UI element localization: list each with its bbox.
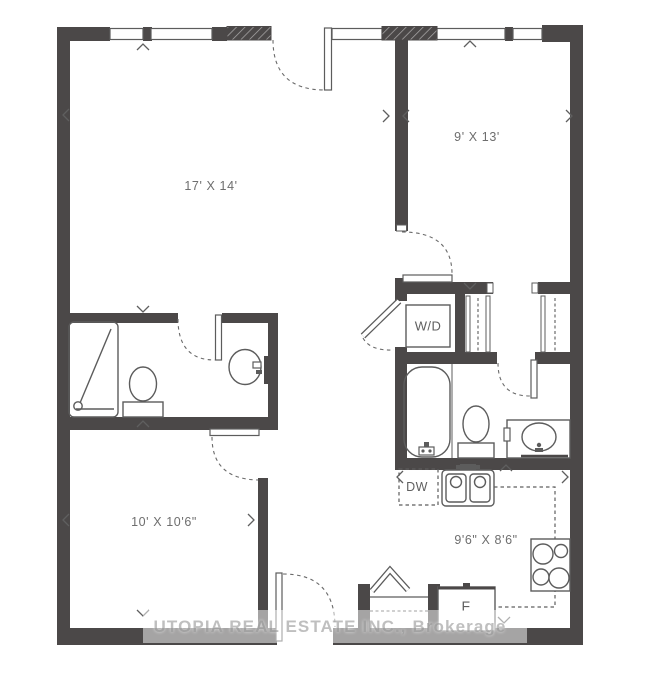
- chevron-mark: [248, 514, 254, 526]
- bifold-closet-door: [372, 570, 408, 591]
- floor-plan: 17' X 14' 9' X 13' 10' X 10'6" 9'6" X 8'…: [0, 0, 662, 682]
- faucet: [256, 370, 262, 374]
- watermark: UTOPIA REAL ESTATE INC., Brokerage: [154, 617, 507, 637]
- chevron-mark: [464, 41, 476, 47]
- balcony-door-panel: [382, 27, 437, 41]
- tub-faucet: [419, 447, 434, 455]
- kitchen-faucet: [476, 465, 480, 469]
- bedroom-door-arc: [212, 437, 258, 480]
- shower-fixture: [69, 322, 118, 417]
- room-dimension-bedroom1: 10' X 10'6": [131, 515, 197, 529]
- faucet: [253, 362, 261, 368]
- window: [332, 29, 382, 40]
- exterior-walls: [57, 25, 583, 645]
- closet-side-panel: [486, 296, 490, 352]
- burner: [533, 569, 549, 585]
- toilet-fixture-bathroom2: [458, 406, 494, 458]
- bathtub-fixture: [404, 367, 450, 457]
- window: [513, 29, 542, 40]
- mirror: [264, 356, 270, 384]
- tub-faucet: [424, 442, 429, 447]
- kitchen-sink-fixture: [442, 464, 494, 506]
- bathroom2-door-arc: [498, 363, 530, 396]
- sink-fixture-bathroom1: [229, 350, 270, 385]
- faucet: [535, 448, 543, 452]
- kitchen-faucet: [460, 464, 476, 470]
- washer-dryer-label: W/D: [415, 319, 441, 334]
- room-dimension-bedroom2: 9' X 13': [454, 130, 500, 144]
- chevron-mark: [137, 306, 149, 312]
- stove-fixture: [531, 539, 570, 591]
- balcony-door-arc: [273, 40, 325, 90]
- soap-ledge: [504, 428, 510, 441]
- window: [151, 29, 212, 40]
- closet-side-panel: [466, 296, 470, 352]
- hall-door-arc: [402, 232, 452, 274]
- bathroom1-door-arc: [178, 319, 215, 360]
- room-dimension-living: 17' X 14': [184, 179, 237, 193]
- burner: [533, 544, 553, 564]
- chevron-mark: [562, 471, 568, 483]
- hall-door-leaf: [403, 275, 452, 282]
- kitchen-faucet: [456, 465, 460, 469]
- chevron-mark: [383, 110, 389, 122]
- wd-closet-door-arc: [363, 338, 394, 350]
- burner: [549, 568, 569, 588]
- chevron-mark: [137, 44, 149, 50]
- bathroom2-door-leaf: [531, 360, 537, 398]
- window: [437, 29, 505, 40]
- burner: [555, 545, 568, 558]
- toilet-fixture-bathroom1: [123, 367, 163, 417]
- faucet: [537, 443, 541, 447]
- window: [110, 29, 143, 40]
- room-dimension-kitchen: 9'6" X 8'6": [454, 533, 517, 547]
- floor-plan-drawing: [0, 0, 662, 682]
- balcony-door-leaf: [325, 28, 332, 90]
- bathroom1-door-leaf: [216, 315, 222, 360]
- chevron-mark: [397, 471, 403, 483]
- balcony-door-panel: [227, 27, 271, 41]
- dishwasher-label: DW: [406, 480, 428, 494]
- vanity-fixture-bathroom2: [504, 420, 570, 458]
- bedroom-door-leaf: [210, 429, 259, 436]
- wd-closet-door-leaf: [363, 301, 399, 336]
- closet-side-panel: [541, 296, 545, 352]
